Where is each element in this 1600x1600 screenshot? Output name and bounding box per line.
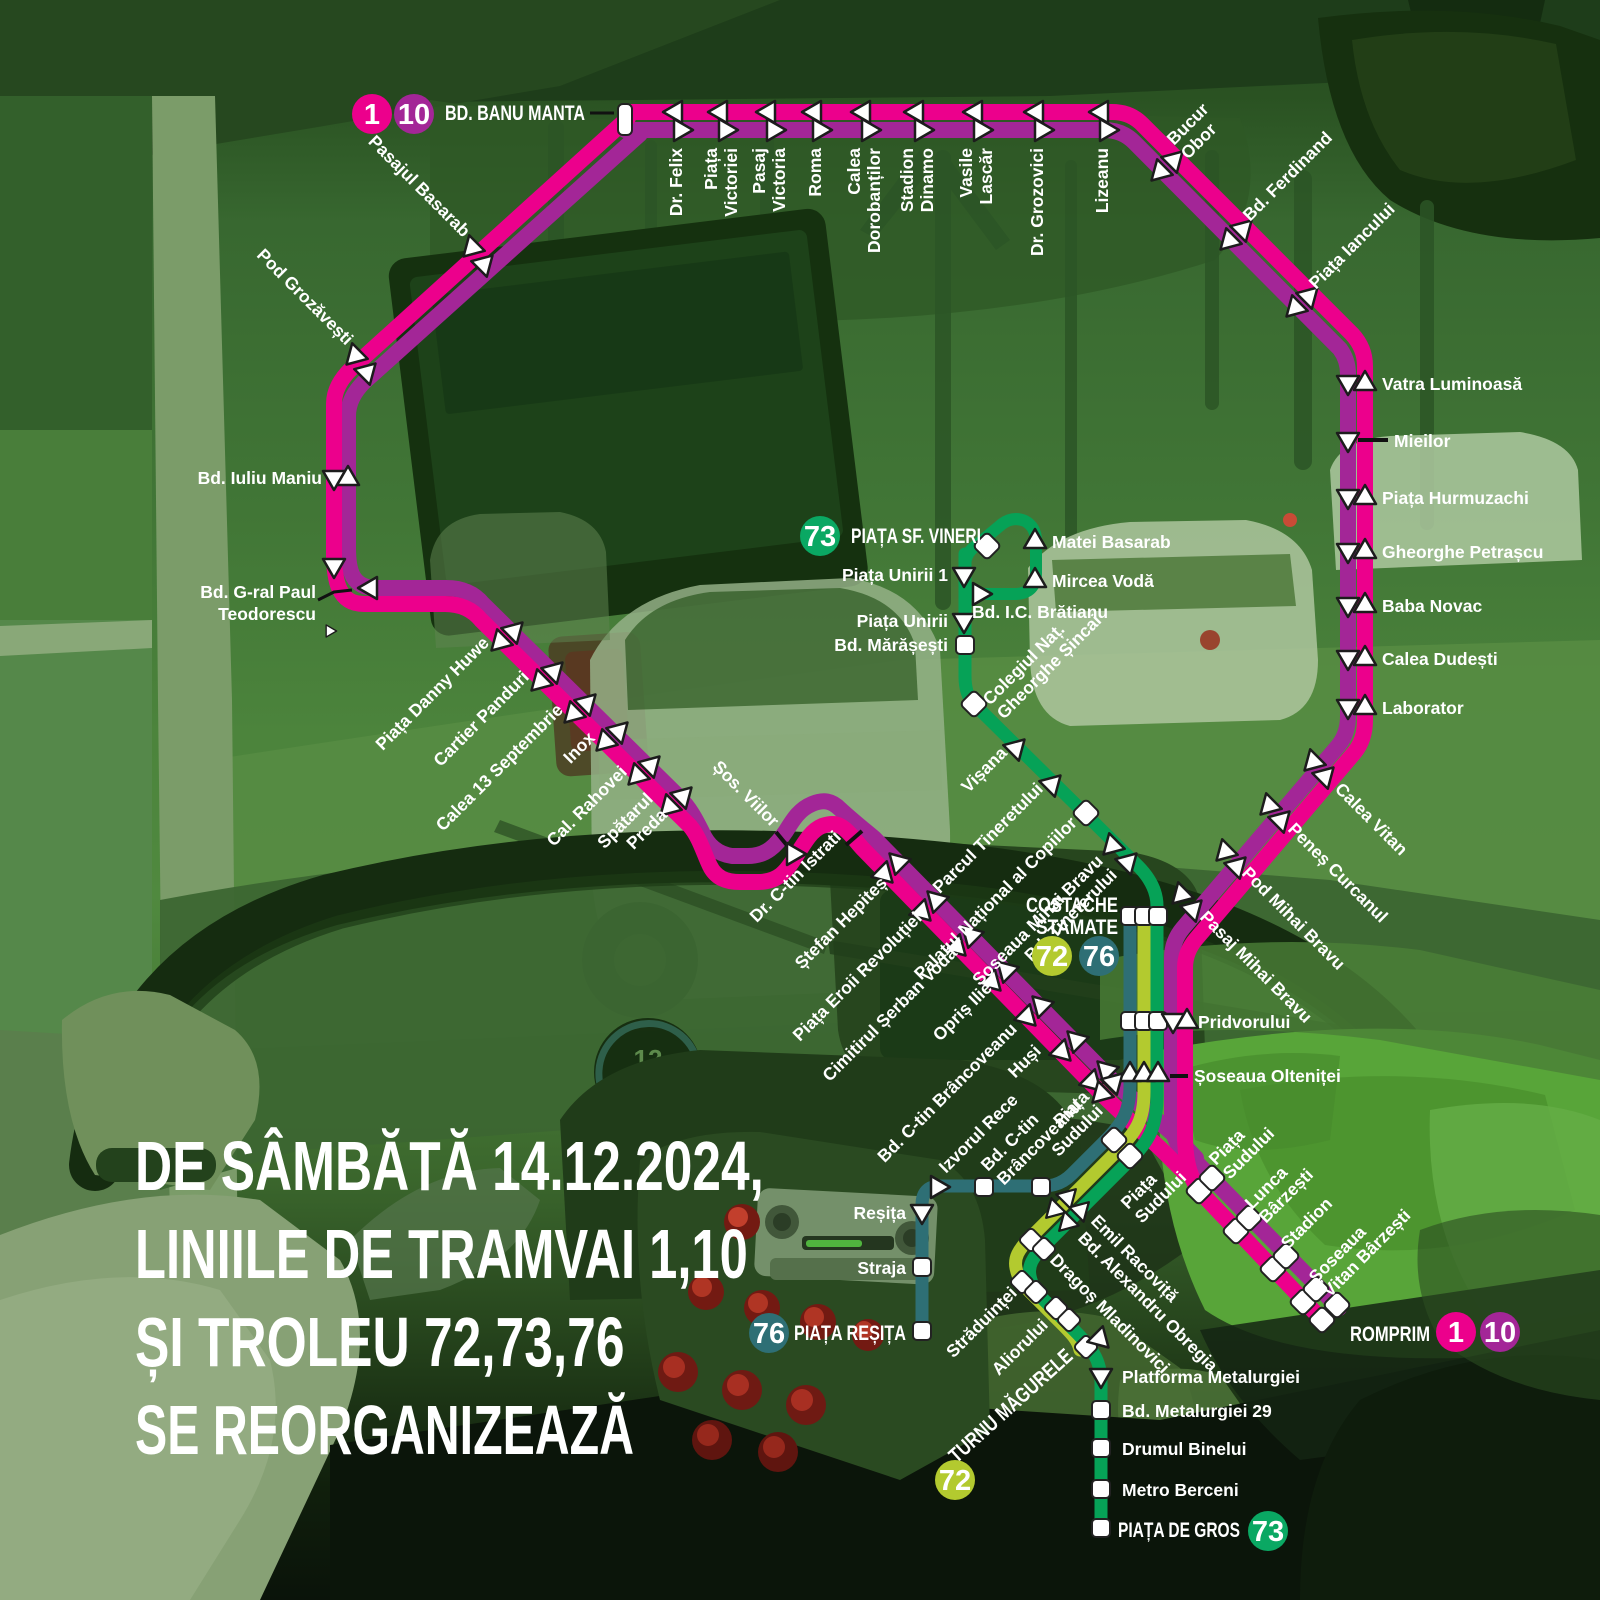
svg-text:Calea Dudești: Calea Dudești	[1382, 649, 1498, 669]
svg-text:Dorobanților: Dorobanților	[864, 148, 884, 253]
svg-text:Dr. Felix: Dr. Felix	[666, 148, 686, 216]
svg-text:Vasile: Vasile	[956, 148, 976, 198]
svg-text:72: 72	[1036, 941, 1068, 973]
svg-text:Piața Unirii 1: Piața Unirii 1	[842, 565, 948, 585]
svg-text:Stadion: Stadion	[897, 148, 917, 212]
svg-text:ROMPRIM: ROMPRIM	[1350, 1323, 1430, 1346]
svg-text:Drumul Binelui: Drumul Binelui	[1122, 1439, 1246, 1459]
svg-text:Vatra Luminoasă: Vatra Luminoasă	[1382, 374, 1522, 394]
svg-text:Metro Berceni: Metro Berceni	[1122, 1480, 1239, 1500]
svg-text:PIAȚA REȘIȚA: PIAȚA REȘIȚA	[794, 1322, 906, 1345]
svg-text:76: 76	[753, 1318, 785, 1350]
svg-text:10: 10	[1484, 1317, 1516, 1349]
svg-text:PIAȚA DE GROS: PIAȚA DE GROS	[1118, 1519, 1240, 1542]
svg-text:1: 1	[364, 99, 380, 131]
svg-text:LINIILE DE TRAMVAI 1,10: LINIILE DE TRAMVAI 1,10	[135, 1215, 748, 1293]
svg-text:COSTACHE: COSTACHE	[1026, 894, 1118, 917]
svg-text:BD. BANU MANTA: BD. BANU MANTA	[445, 102, 585, 125]
svg-text:Matei Basarab: Matei Basarab	[1052, 532, 1171, 552]
svg-text:Piața: Piața	[701, 148, 721, 190]
svg-text:73: 73	[1252, 1516, 1284, 1548]
svg-text:10: 10	[398, 99, 430, 131]
svg-text:Teodorescu: Teodorescu	[218, 604, 316, 624]
svg-text:Victoria: Victoria	[769, 148, 789, 212]
svg-text:Bd. Iuliu Maniu: Bd. Iuliu Maniu	[198, 468, 322, 488]
svg-text:Mircea Vodă: Mircea Vodă	[1052, 571, 1154, 591]
svg-text:PIAȚA SF. VINERI: PIAȚA SF. VINERI	[851, 525, 981, 548]
svg-text:Dr. Grozovici: Dr. Grozovici	[1027, 148, 1047, 256]
svg-text:SE REORGANIZEAZĂ: SE REORGANIZEAZĂ	[135, 1391, 634, 1469]
svg-text:Bd. G-ral Paul: Bd. G-ral Paul	[200, 582, 316, 602]
svg-text:Dinamo: Dinamo	[917, 148, 937, 212]
svg-text:Baba Novac: Baba Novac	[1382, 596, 1482, 616]
svg-text:Reșița: Reșița	[853, 1203, 906, 1223]
svg-text:Piața Hurmuzachi: Piața Hurmuzachi	[1382, 488, 1529, 508]
svg-text:STAMATE: STAMATE	[1036, 916, 1118, 939]
svg-text:Gheorghe Petrașcu: Gheorghe Petrașcu	[1382, 542, 1543, 562]
svg-text:73: 73	[804, 521, 836, 553]
svg-text:Pasaj: Pasaj	[749, 148, 769, 194]
svg-text:Victoriei: Victoriei	[721, 148, 741, 217]
svg-text:Bd. Mărășești: Bd. Mărășești	[834, 635, 948, 655]
svg-text:Laborator: Laborator	[1382, 698, 1464, 718]
svg-text:Roma: Roma	[805, 148, 825, 197]
svg-text:DE SÂMBĂTĂ 14.12.2024,: DE SÂMBĂTĂ 14.12.2024,	[135, 1127, 764, 1206]
svg-text:72: 72	[939, 1465, 971, 1497]
svg-text:Mieilor: Mieilor	[1394, 431, 1451, 451]
svg-text:1: 1	[1448, 1317, 1464, 1349]
svg-text:Pridvorului: Pridvorului	[1198, 1012, 1290, 1032]
svg-text:Șoseaua Olteniței: Șoseaua Olteniței	[1194, 1066, 1341, 1086]
svg-text:Straja: Straja	[857, 1258, 906, 1278]
svg-text:ȘI TROLEU 72,73,76: ȘI TROLEU 72,73,76	[135, 1303, 624, 1382]
svg-text:Bd. Metalurgiei 29: Bd. Metalurgiei 29	[1122, 1401, 1272, 1421]
svg-text:Lizeanu: Lizeanu	[1092, 148, 1112, 213]
svg-text:Piața Unirii: Piața Unirii	[857, 611, 948, 631]
svg-text:Lascăr: Lascăr	[976, 148, 996, 205]
svg-text:Platforma Metalurgiei: Platforma Metalurgiei	[1122, 1367, 1300, 1387]
svg-text:76: 76	[1083, 941, 1115, 973]
svg-text:Calea: Calea	[844, 148, 864, 195]
